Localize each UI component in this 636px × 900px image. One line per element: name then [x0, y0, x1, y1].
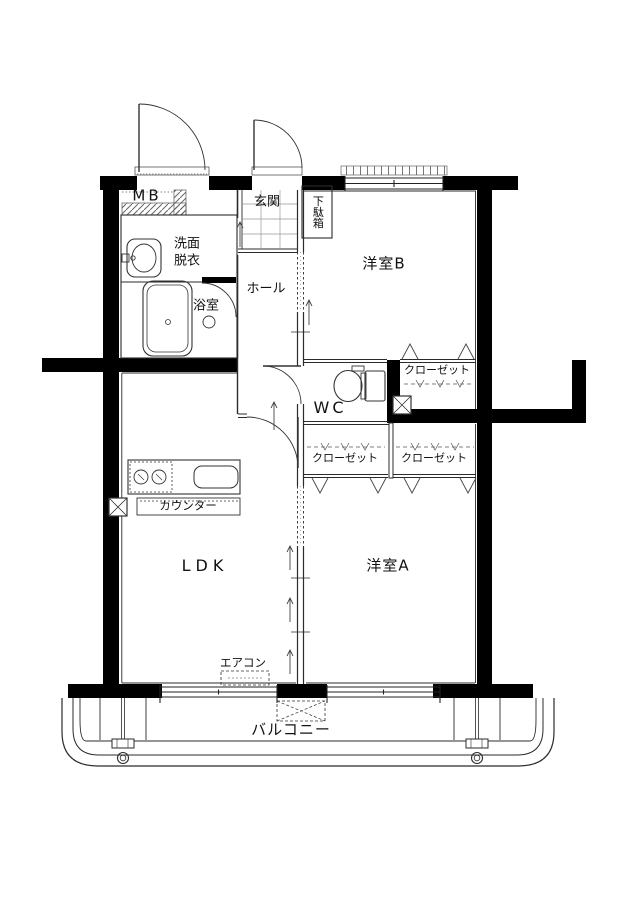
- label-counter: カウンター: [159, 499, 217, 512]
- label-datsui: 脱衣: [174, 255, 200, 270]
- label-senmen: 洗面: [174, 238, 200, 253]
- label-western-room-b: 洋室B: [362, 255, 405, 272]
- label-getabako: 下駄箱: [311, 196, 324, 229]
- washbasin-icon: [122, 239, 161, 277]
- floor-plan-drawing: [0, 0, 636, 900]
- label-western-room-a: 洋室A: [366, 557, 409, 574]
- label-closet-b: クローゼット: [404, 365, 470, 378]
- label-balcony: バルコニー: [251, 721, 331, 738]
- kitchen-unit: [128, 460, 240, 494]
- label-ldk: LDK: [182, 557, 229, 575]
- balcony-drain-icon-2: [466, 739, 488, 764]
- window-room-b: [341, 166, 447, 191]
- outdoor-unit-dashed-box: [277, 701, 325, 721]
- pipe-space-icon-2: [393, 396, 411, 414]
- label-closet-a-left: クローゼット: [312, 453, 378, 466]
- bath-drain-icon: [203, 316, 215, 328]
- label-hall: ホール: [246, 283, 285, 298]
- pipe-space-icon: [109, 498, 127, 516]
- label-yokushitsu: 浴室: [193, 300, 219, 315]
- label-aircon: エアコン: [220, 656, 266, 669]
- toilet-icon: [334, 366, 385, 402]
- window-room-a: [327, 685, 440, 703]
- entrance-door-icon: [252, 120, 302, 175]
- label-closet-a-right: クローゼット: [401, 453, 467, 466]
- label-genkan: 玄関: [254, 196, 280, 211]
- wc-door-icon: [263, 366, 301, 404]
- bathtub-icon: [143, 281, 215, 356]
- label-wc: WC: [314, 399, 347, 417]
- fixtures: [109, 239, 411, 721]
- ldk-door-icon: [247, 417, 298, 468]
- floor-plan: MB 玄関 下駄箱 洗面 脱衣 浴室 ホール 洋室B クローゼット WC クロー…: [0, 0, 636, 900]
- kitchen-sink-icon: [194, 466, 238, 488]
- balcony-drain-icon: [112, 739, 134, 764]
- mb-door-icon: [135, 104, 209, 175]
- label-mb: MB: [132, 187, 161, 204]
- window-ldk: [160, 685, 277, 703]
